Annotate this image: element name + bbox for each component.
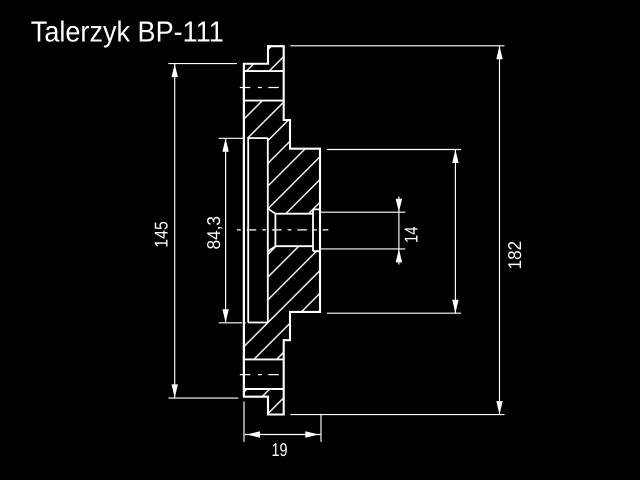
svg-text:19: 19 [272,439,288,460]
svg-text:14: 14 [400,227,421,244]
svg-text:182: 182 [504,241,525,270]
svg-text:145: 145 [150,221,171,248]
svg-text:84,3: 84,3 [203,216,224,250]
svg-text:Talerzyk BP-111: Talerzyk BP-111 [31,16,224,48]
